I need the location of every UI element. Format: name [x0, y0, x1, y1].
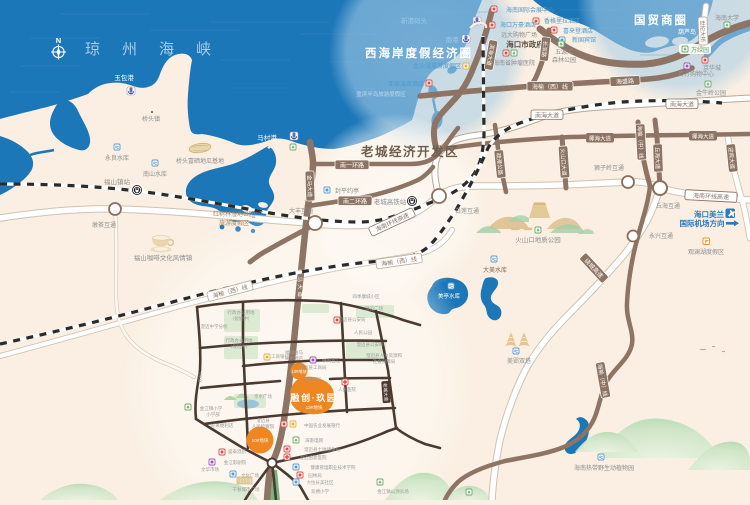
- svg-text:海榆（西）线: 海榆（西）线: [532, 83, 568, 91]
- svg-text:香格里拉酒店: 香格里拉酒店: [544, 17, 580, 25]
- svg-text:（规划中）: （规划中）: [228, 343, 251, 350]
- svg-text:西海岸度假经济圈: 西海岸度假经济圈: [365, 46, 473, 60]
- svg-text:马村港: 马村港: [257, 133, 277, 142]
- svg-text:行政办公用地: 行政办公用地: [226, 337, 253, 344]
- svg-text:澄迈函夏医院: 澄迈函夏医院: [300, 454, 327, 461]
- svg-text:永兴互通: 永兴互通: [649, 232, 673, 240]
- svg-text:金江影剧院: 金江影剧院: [224, 459, 247, 466]
- svg-text:小学部: 小学部: [206, 411, 220, 418]
- svg-text:四季康城小区: 四季康城小区: [353, 293, 380, 300]
- svg-text:文化广场: 文化广场: [241, 472, 259, 479]
- svg-text:澄迈县: 澄迈县: [256, 417, 270, 424]
- svg-text:南一环路: 南一环路: [340, 161, 364, 169]
- svg-text:白莲互通: 白莲互通: [455, 207, 479, 215]
- svg-text:百方购物中心: 百方购物中心: [678, 70, 714, 78]
- svg-text:海南省肿瘤医院: 海南省肿瘤医院: [493, 59, 535, 67]
- svg-text:大美水库: 大美水库: [483, 266, 507, 274]
- svg-text:金沙湾旅游度假区: 金沙湾旅游度假区: [413, 62, 461, 70]
- svg-text:海南大学: 海南大学: [715, 14, 739, 22]
- svg-text:南山水库: 南山水库: [143, 170, 167, 178]
- svg-text:红树林湿地公园: 红树林湿地公园: [213, 210, 255, 218]
- svg-text:新国宾馆: 新国宾馆: [572, 36, 596, 44]
- svg-text:玉包港: 玉包港: [114, 73, 134, 82]
- svg-text:森林公园: 森林公园: [552, 56, 576, 64]
- svg-text:澄迈广场: 澄迈广场: [365, 305, 383, 312]
- svg-text:南海大道: 南海大道: [670, 100, 694, 108]
- svg-text:千秋城市广场: 千秋城市广场: [233, 486, 260, 493]
- svg-text:琼州海峡: 琼州海峡: [85, 41, 233, 58]
- svg-text:工商银行: 工商银行: [271, 353, 289, 360]
- svg-text:金牛岭公园: 金牛岭公园: [696, 89, 726, 97]
- svg-text:澄迈中学分校: 澄迈中学分校: [201, 323, 228, 330]
- svg-text:国际机场方向: 国际机场方向: [680, 218, 725, 228]
- svg-text:喜来登酒店: 喜来登酒店: [563, 27, 593, 35]
- svg-text:S303: S303: [198, 372, 203, 383]
- svg-text:福山镇站: 福山镇站: [104, 177, 131, 186]
- svg-text:盛泰酒店: 盛泰酒店: [228, 448, 246, 455]
- svg-text:海南电网: 海南电网: [305, 437, 323, 444]
- svg-text:中闽百汇: 中闽百汇: [322, 357, 340, 364]
- svg-text:桥头镇: 桥头镇: [142, 115, 160, 123]
- svg-text:N: N: [56, 36, 61, 45]
- svg-text:京华城: 京华城: [703, 64, 721, 72]
- svg-text:澄迈县土地储备局: 澄迈县土地储备局: [304, 446, 340, 453]
- svg-text:海南银行: 海南银行: [303, 376, 321, 383]
- svg-text:丘海互通: 丘海互通: [656, 202, 680, 210]
- svg-text:万绿园: 万绿园: [691, 46, 709, 54]
- svg-text:海口万豪酒店: 海口万豪酒店: [500, 21, 536, 29]
- svg-text:澄迈县公安局: 澄迈县公安局: [339, 316, 366, 323]
- svg-text:社会保障局: 社会保障局: [373, 358, 396, 365]
- svg-text:观澜湖度假区: 观澜湖度假区: [688, 248, 724, 256]
- svg-text:老城经济开发区: 老城经济开发区: [360, 144, 459, 159]
- svg-text:澄迈县人力资源和: 澄迈县人力资源和: [366, 352, 402, 359]
- svg-text:行政办公用地: 行政办公用地: [228, 309, 255, 316]
- svg-text:火山口地质公园: 火山口地质公园: [515, 235, 561, 244]
- svg-text:海南热带野生动植物园: 海南热带野生动植物园: [574, 464, 634, 472]
- svg-text:海南国际会展中心: 海南国际会展中心: [506, 6, 554, 14]
- svg-text:国贸商圈: 国贸商圈: [634, 13, 688, 27]
- svg-text:人民医院: 人民医院: [338, 386, 356, 393]
- svg-text:亲水广场: 亲水广场: [254, 393, 272, 400]
- svg-text:文华市场: 文华市场: [201, 466, 219, 473]
- svg-text:狮子岭互通: 狮子岭互通: [594, 164, 624, 172]
- svg-text:园林局: 园林局: [308, 472, 322, 479]
- svg-text:海口美兰: 海口美兰: [694, 209, 724, 219]
- svg-text:远大购物广场: 远大购物广场: [501, 31, 537, 39]
- svg-text:桥头富硒地瓜基地: 桥头富硒地瓜基地: [176, 157, 224, 165]
- svg-text:旅游度假区: 旅游度假区: [219, 219, 249, 227]
- svg-text:人民检察院: 人民检察院: [252, 423, 275, 430]
- svg-text:（规划中）: （规划中）: [230, 315, 253, 322]
- svg-text:永良水库: 永良水库: [105, 154, 129, 162]
- svg-text:融创·玖园: 融创·玖园: [291, 392, 338, 403]
- svg-text:澄迈县工商局: 澄迈县工商局: [300, 364, 327, 371]
- svg-text:美亭水库: 美亭水库: [438, 292, 461, 300]
- svg-text:福山咖啡文化风情镇: 福山咖啡文化风情镇: [134, 253, 193, 262]
- svg-text:海口市政府: 海口市政府: [506, 39, 544, 49]
- svg-text:椰海大道: 椰海大道: [692, 132, 715, 140]
- svg-text:盈滨半岛旅游度假区: 盈滨半岛旅游度假区: [356, 90, 406, 98]
- svg-text:中国农业发展银行: 中国农业发展银行: [304, 422, 340, 429]
- svg-text:封平约亭: 封平约亭: [335, 187, 359, 195]
- svg-text:大拉长美社区: 大拉长美社区: [307, 479, 334, 486]
- svg-text:新港码头: 新港码头: [401, 16, 428, 25]
- svg-text:澄迈县公安局: 澄迈县公安局: [357, 341, 384, 348]
- svg-text:健康管理职业技术学院: 健康管理职业技术学院: [311, 464, 356, 471]
- svg-text:双拥小学: 双拥小学: [311, 488, 329, 495]
- svg-text:大丰互通: 大丰互通: [289, 207, 313, 215]
- svg-text:金江镇小学: 金江镇小学: [200, 405, 223, 412]
- svg-text:老城高铁站: 老城高铁站: [374, 197, 407, 206]
- svg-text:南二环路: 南二环路: [343, 197, 367, 205]
- svg-text:椰海大道: 椰海大道: [589, 134, 612, 142]
- svg-text:10#地块: 10#地块: [252, 437, 269, 444]
- svg-text:葫芦岛: 葫芦岛: [678, 28, 696, 36]
- svg-text:美郢双塔: 美郢双塔: [507, 357, 531, 365]
- svg-text:好来便利店: 好来便利店: [211, 422, 234, 429]
- svg-text:五源河: 五源河: [555, 48, 573, 56]
- svg-text:亚泰温泉酒店: 亚泰温泉酒店: [388, 80, 424, 88]
- svg-text:南港: 南港: [446, 35, 460, 44]
- svg-text:南海大道: 南海大道: [535, 111, 559, 119]
- svg-text:墩茶互通: 墩茶互通: [92, 221, 116, 229]
- svg-text:金江镇山顶农场: 金江镇山顶农场: [377, 488, 409, 495]
- svg-text:13#地块: 13#地块: [306, 404, 323, 411]
